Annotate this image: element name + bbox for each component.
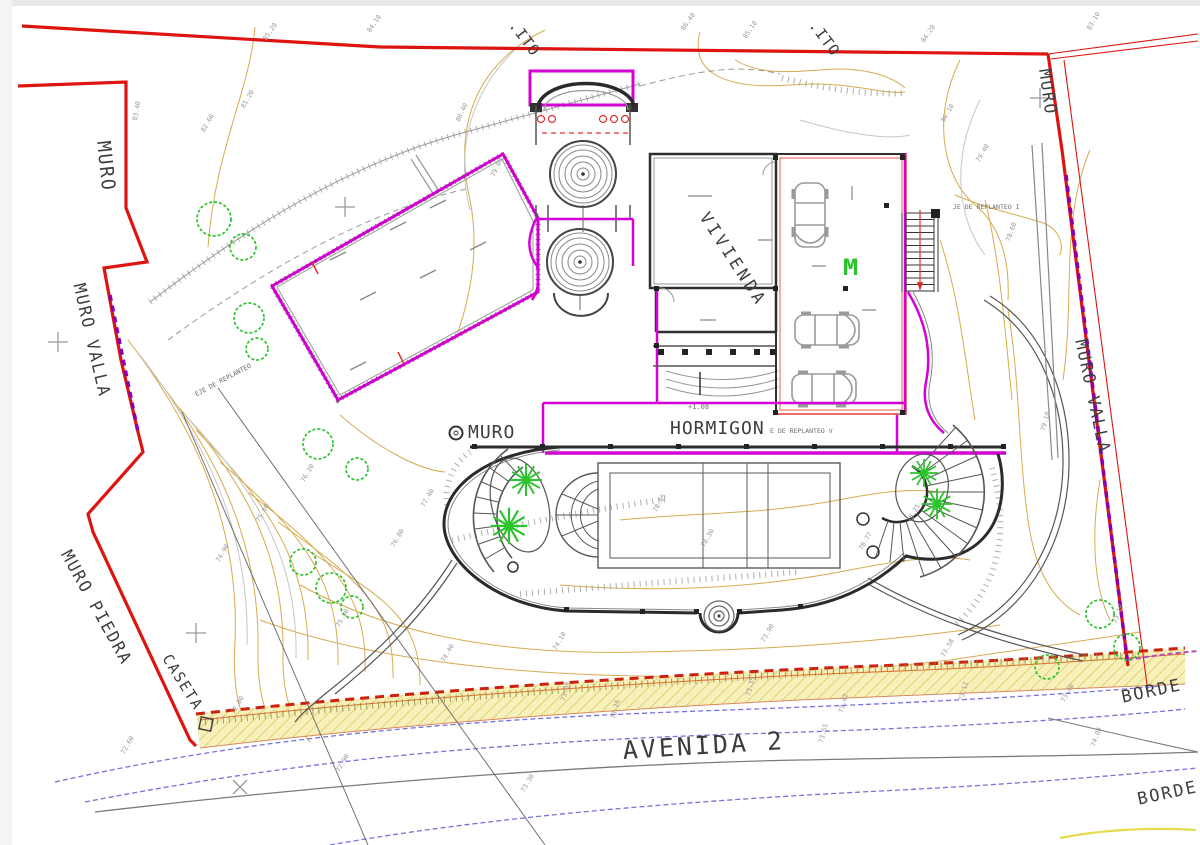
- round-room-2: [547, 229, 613, 295]
- round-room-1: [550, 141, 616, 207]
- green-m-marker: M: [843, 256, 858, 279]
- left-radial-stairs: [473, 449, 523, 572]
- contour-lines: [128, 27, 1140, 742]
- muro-symbol: [450, 427, 463, 440]
- property-boundary: [18, 26, 1198, 746]
- car-2: [795, 313, 859, 347]
- fountain: [700, 601, 738, 632]
- car-3: [792, 372, 856, 406]
- site-plan-screenshot: MURO MURO VALLA MURO PIEDRA CASETA MURO …: [0, 0, 1200, 845]
- muro-valla-hatch: [110, 175, 1128, 666]
- label-muro-center: MURO: [468, 424, 515, 442]
- label-replanteo-i: JE DE REPLANTEO I: [953, 204, 1020, 211]
- pool: [556, 463, 840, 568]
- site-plan-drawing: [0, 0, 1200, 845]
- porch-columns: [658, 349, 776, 355]
- label-muro-top-right: MURO: [1035, 68, 1058, 116]
- exterior-stair: [884, 203, 948, 433]
- label-plus-level: +1.08: [688, 404, 709, 411]
- arch-red-fittings: [538, 116, 629, 123]
- car-1: [793, 183, 827, 247]
- label-replanteo-v: E DE REPLANTEO V: [770, 428, 833, 435]
- oval-terrace: [444, 425, 1002, 632]
- label-hormigon: HORMIGON: [670, 420, 765, 438]
- palm-trees: [491, 459, 953, 544]
- slope-hachures: [150, 78, 1000, 625]
- road-lines: [95, 388, 1198, 845]
- label-muro-top-left: MURO: [93, 140, 117, 193]
- carport: [776, 154, 906, 415]
- contour-lines-gray: [140, 45, 985, 658]
- outbuilding: [272, 154, 538, 400]
